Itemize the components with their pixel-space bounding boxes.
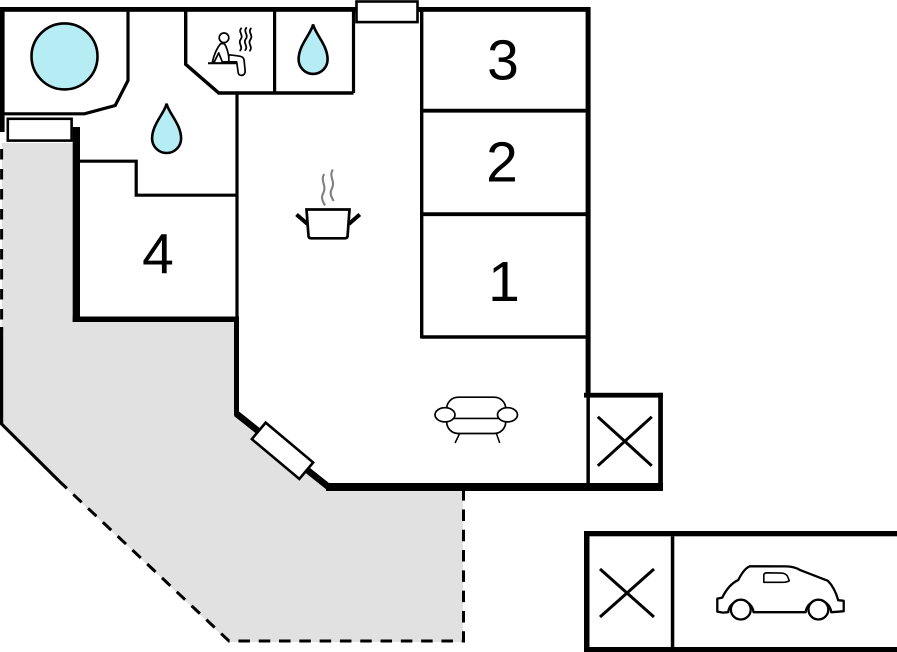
svg-text:4: 4 xyxy=(142,223,174,287)
svg-text:1: 1 xyxy=(488,250,520,314)
svg-text:3: 3 xyxy=(487,29,519,93)
svg-text:2: 2 xyxy=(486,130,518,194)
